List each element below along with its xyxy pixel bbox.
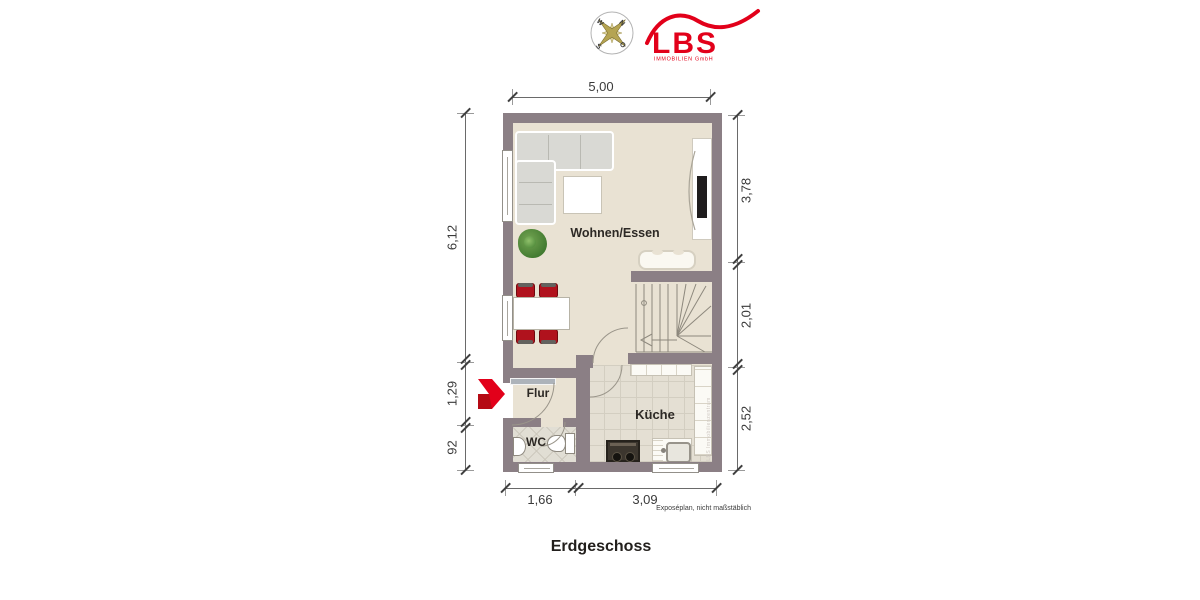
room-label-living: Wohnen/Essen bbox=[555, 226, 675, 240]
living-hall-door-arc bbox=[593, 328, 628, 363]
room-label-hall: Flur bbox=[508, 386, 568, 400]
page-title: Erdgeschoss bbox=[501, 538, 701, 556]
dim-line-top bbox=[512, 97, 710, 98]
stairs-direction-arrow-icon bbox=[641, 334, 652, 346]
dim-line-bottom bbox=[505, 488, 716, 489]
room-label-kitchen: Küche bbox=[620, 407, 690, 422]
dim-right-label-0: 3,78 bbox=[739, 151, 754, 231]
kitchen-door-arc bbox=[590, 365, 622, 397]
floorplan-page: N O S W LBS IMMOBILIEN GmbH bbox=[0, 0, 1200, 600]
dim-right-label-2: 2,52 bbox=[739, 379, 754, 459]
dim-left-label-0: 6,12 bbox=[445, 198, 460, 278]
room-label-wc: WC bbox=[520, 435, 552, 449]
dim-line-left bbox=[465, 113, 466, 470]
niche-arc bbox=[689, 151, 695, 230]
plan-watermark: LBS Immobilienzentrum bbox=[706, 394, 716, 464]
staircase bbox=[636, 284, 712, 352]
entrance-arrow-icon bbox=[478, 379, 505, 409]
dim-top-label: 5,00 bbox=[561, 79, 641, 94]
scale-disclaimer: Exposéplan, nicht maßstäblich bbox=[620, 505, 751, 512]
dim-left-label-2: 92 bbox=[445, 408, 460, 488]
dim-right-label-1: 2,01 bbox=[739, 276, 754, 356]
dim-bottom-label-0: 1,66 bbox=[500, 492, 580, 507]
